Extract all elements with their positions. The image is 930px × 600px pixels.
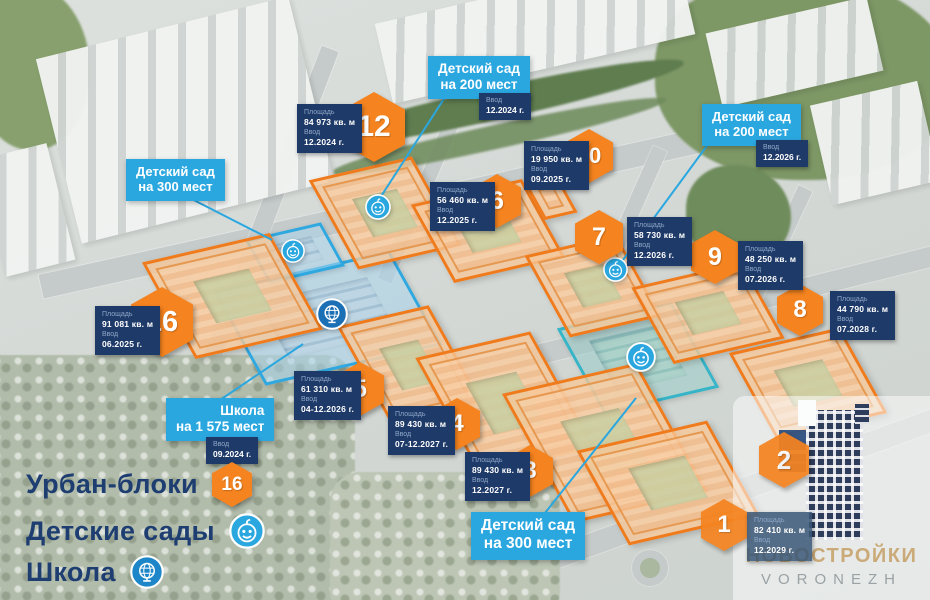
kindergarten-200-right-vvod: Ввод 12.2026 г. (756, 140, 808, 167)
logo-city-text: VORONEZH (733, 571, 930, 588)
legend-hexagon-marker: 16 (212, 462, 252, 507)
block-16-info: Площадь 91 081 кв. м Ввод 06.2025 г. (95, 306, 160, 355)
kindergarten-icon (229, 513, 265, 549)
roundabout (632, 550, 668, 586)
block-6-info: Площадь 56 460 кв. м Ввод 12.2025 г. (430, 182, 495, 231)
legend-school: Школа (26, 555, 265, 589)
kindergarten-icon (626, 342, 656, 372)
kindergarten-icon (281, 239, 305, 263)
school-globe-icon (130, 555, 164, 589)
school-globe-icon (316, 298, 348, 330)
kindergarten-icon (603, 257, 628, 282)
legend-urban-blocks: Урбан-блоки 16 (26, 462, 265, 507)
block-4-info: Площадь 89 430 кв. м Ввод 07-12.2027 г. (388, 406, 455, 455)
master-plan-canvas: НОВОСТРОЙКИ VORONEZH 12 10 6 7 9 8 16 5 … (0, 0, 930, 600)
block-12-info: Площадь 84 973 кв. м Ввод 12.2024 г. (297, 104, 362, 153)
kindergarten-icon (365, 194, 391, 220)
block-3-info: Площадь 89 430 кв. м Ввод 12.2027 г. (465, 452, 530, 501)
logo-tower-illustration (806, 410, 863, 540)
block-5-info: Площадь 61 310 кв. м Ввод 04-12.2026 г. (294, 371, 361, 420)
block-9-info: Площадь 48 250 кв. м Ввод 07.2026 г. (738, 241, 803, 290)
block-8-info: Площадь 44 790 кв. м Ввод 07.2028 г. (830, 291, 895, 340)
kindergarten-300-left-callout[interactable]: Детский сад на 300 мест (126, 159, 225, 201)
school-callout[interactable]: Школа на 1 575 мест (166, 398, 274, 441)
block-10-info: Площадь 19 950 кв. м Ввод 09.2025 г. (524, 141, 589, 190)
legend-kindergartens: Детские сады (26, 513, 265, 549)
block-1-info: Площадь 82 410 кв. м Ввод 12.2029 г. (747, 512, 812, 561)
kindergarten-200-top-vvod: Ввод 12.2024 г. (479, 93, 531, 120)
kindergarten-300-bottom-callout[interactable]: Детский сад на 300 мест (471, 512, 585, 560)
legend: Урбан-блоки 16 Детские сады Школа (26, 462, 265, 595)
school-vvod: Ввод 09.2024 г. (206, 437, 258, 464)
block-7-info: Площадь 58 730 кв. м Ввод 12.2026 г. (627, 217, 692, 266)
